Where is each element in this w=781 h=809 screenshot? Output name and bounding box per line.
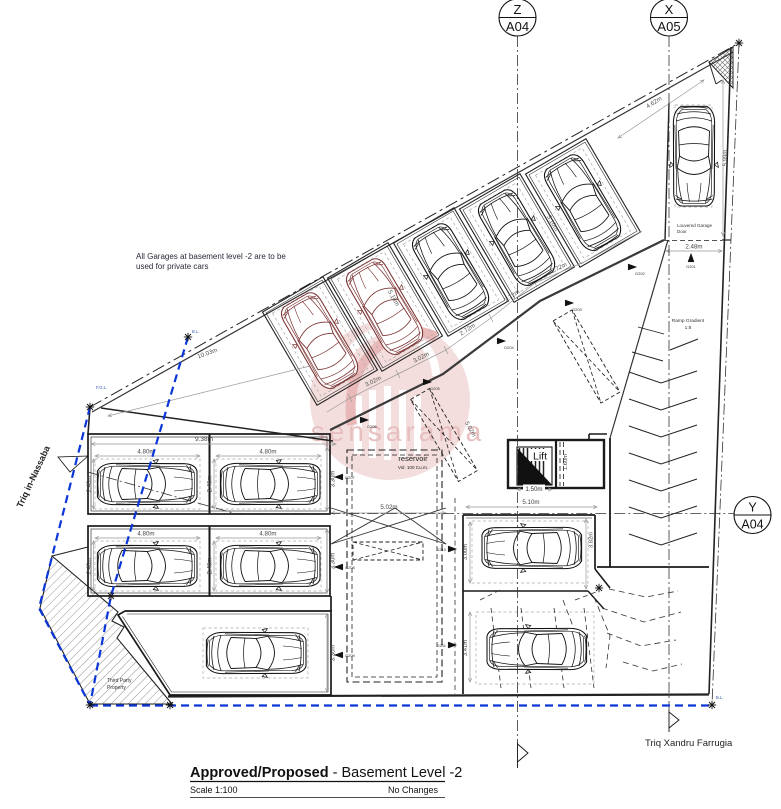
svg-text:No Changes: No Changes [388,785,439,795]
svg-text:9.38m: 9.38m [195,436,213,443]
svg-text:3.82m: 3.82m [589,532,595,548]
svg-text:G205: G205 [430,386,441,391]
svg-text:used for private cars: used for private cars [136,262,208,271]
svg-text:2.48m: 2.48m [685,244,702,251]
svg-text:G204: G204 [504,345,515,350]
svg-text:4.80m: 4.80m [259,449,276,456]
svg-text:Scale 1:100: Scale 1:100 [190,785,238,795]
svg-text:Z: Z [514,2,522,17]
svg-text:3.30m: 3.30m [331,471,337,488]
svg-text:reservoir: reservoir [398,454,428,463]
svg-text:B.L.: B.L. [192,329,199,334]
svg-text:G201: G201 [686,264,697,269]
svg-text:2.40m: 2.40m [208,476,214,493]
svg-text:F.G.L.: F.G.L. [96,385,107,390]
svg-text:G202: G202 [635,271,646,276]
svg-text:G210: G210 [436,547,447,552]
svg-text:G211: G211 [437,643,447,648]
svg-text:Property: Property [107,685,126,691]
svg-text:G207: G207 [345,475,356,480]
svg-text:4.80m: 4.80m [137,531,154,538]
svg-text:Approved/Proposed - Basement L: Approved/Proposed - Basement Level -2 [190,765,462,781]
svg-text:1:8: 1:8 [685,325,692,331]
svg-text:3.30m: 3.30m [331,645,337,662]
svg-text:G203: G203 [572,307,583,312]
svg-text:G208: G208 [345,565,356,570]
svg-text:Y: Y [748,501,757,515]
svg-text:A04: A04 [506,19,529,34]
svg-text:Vol: 100 Cu.m.: Vol: 100 Cu.m. [398,465,428,470]
svg-text:G206: G206 [367,424,378,429]
svg-text:Third Party: Third Party [107,678,132,684]
svg-text:5.02m: 5.02m [380,504,397,511]
svg-text:sensarama: sensarama [311,416,486,447]
svg-text:3.41m: 3.41m [463,640,469,656]
svg-text:G209: G209 [345,653,356,658]
svg-text:Triq Xandru Farrugia: Triq Xandru Farrugia [645,738,733,749]
svg-text:Door: Door [677,229,687,234]
svg-text:A05: A05 [657,19,680,34]
svg-text:Ramp Gradient: Ramp Gradient [672,318,705,324]
svg-text:1.60m: 1.60m [563,454,569,470]
svg-text:2.40m: 2.40m [87,476,93,493]
svg-text:X: X [665,2,674,17]
svg-text:5.99m: 5.99m [723,150,729,167]
svg-text:4.80m: 4.80m [259,531,276,538]
svg-text:Lift: Lift [533,451,547,463]
svg-text:Louvered Garage: Louvered Garage [677,223,713,228]
svg-text:2.40m: 2.40m [87,558,93,575]
svg-text:5.10m: 5.10m [522,499,539,506]
svg-text:1.50m: 1.50m [525,486,542,493]
svg-text:B.L.: B.L. [716,695,723,700]
svg-text:A04: A04 [741,518,763,532]
svg-text:2.40m: 2.40m [208,558,214,575]
svg-text:All Garages at basement level: All Garages at basement level -2 are to … [136,252,286,261]
svg-text:3.00m: 3.00m [463,544,469,560]
